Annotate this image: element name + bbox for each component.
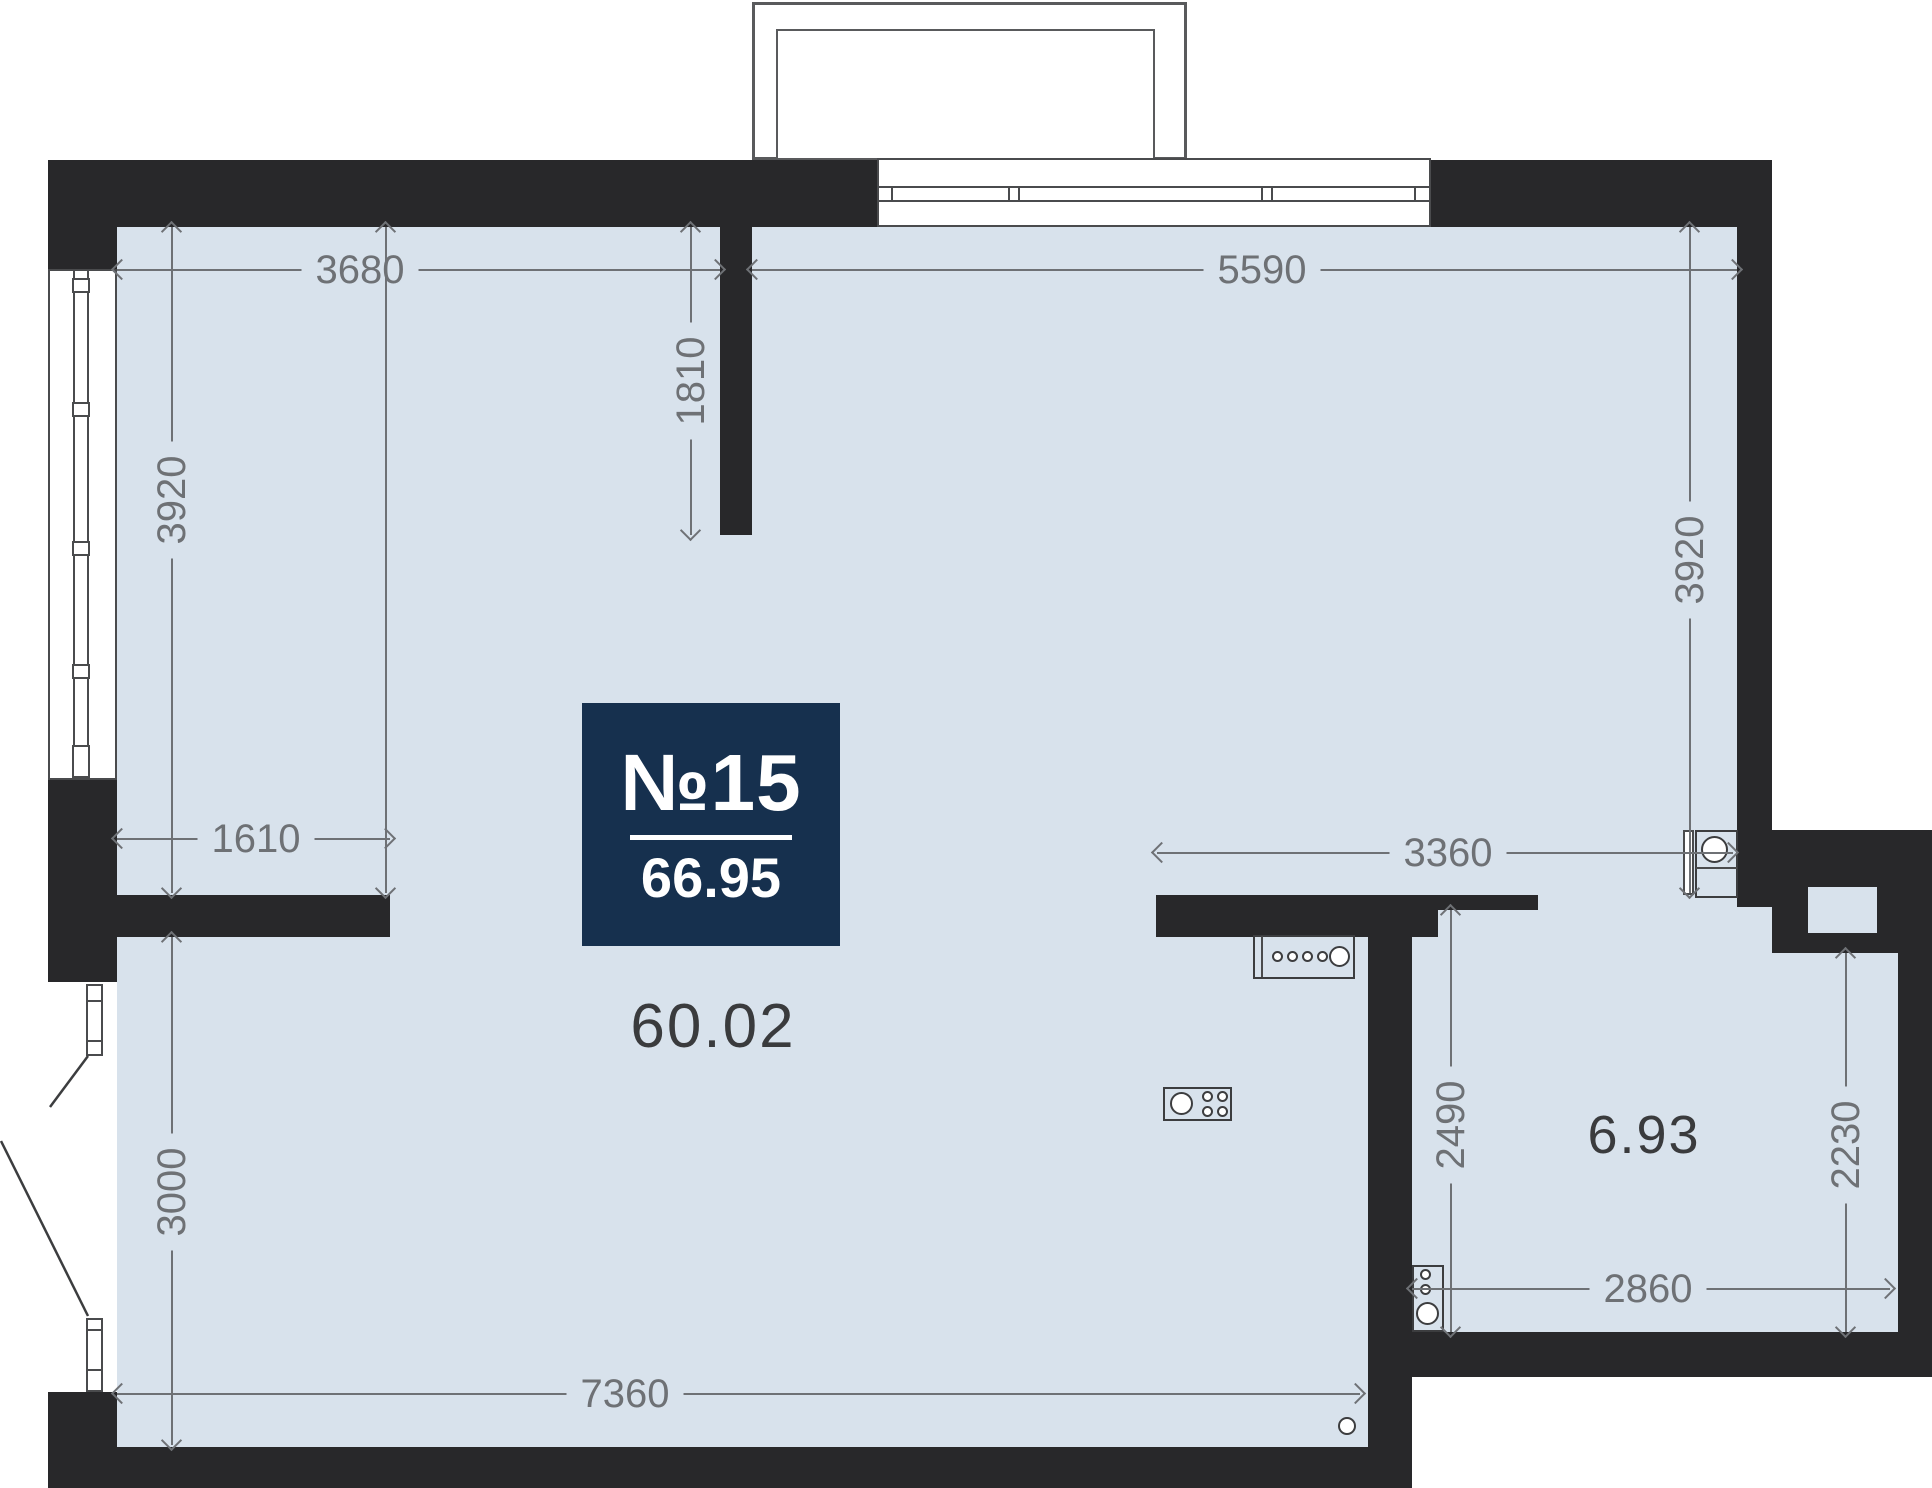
washer-drum xyxy=(1416,1302,1439,1325)
balcony-door-jamb-top-line-1 xyxy=(87,1000,102,1002)
wall-inner-1610 xyxy=(117,895,390,937)
dimension-witness-line xyxy=(385,227,387,893)
balcony-door-jamb-top-line-2 xyxy=(87,1040,102,1042)
top-window-mullion-3 xyxy=(1018,186,1020,202)
stove-small-burner-4 xyxy=(1217,1106,1228,1117)
dimension-left-height: 3920 xyxy=(171,227,173,893)
sink-burner-1 xyxy=(1272,951,1283,962)
dimension-kitchen-width: 3360 xyxy=(1157,852,1733,854)
badge-divider xyxy=(630,835,792,840)
dimension-entry-stub-depth: 1810 xyxy=(690,227,692,535)
dimension-lower-left-height: 3000 xyxy=(171,937,173,1445)
dimension-bathroom-left-height: 2490 xyxy=(1450,910,1452,1332)
wall-bottom xyxy=(117,1447,1412,1488)
balcony-door-jamb-bottom-line-2 xyxy=(87,1369,102,1371)
sink-burner-4 xyxy=(1317,951,1328,962)
sink-counter-edge xyxy=(1261,936,1263,977)
top-window-mullion-5 xyxy=(1271,186,1273,202)
wall-bathroom-right xyxy=(1898,953,1932,1332)
balcony-door-jamb-bottom-line-1 xyxy=(87,1329,102,1331)
dimension-left-inner-width: 1610 xyxy=(117,838,390,840)
dimension-bottom-width: 7360 xyxy=(117,1393,1360,1395)
left-window-mullion-2 xyxy=(72,402,90,417)
wall-entry-stub xyxy=(720,227,752,535)
wall-top-right xyxy=(1431,160,1772,227)
top-window-mullion-4 xyxy=(1261,186,1263,202)
left-window-mullion-4 xyxy=(72,664,90,679)
dimension-label: 3920 xyxy=(150,442,194,559)
floor-plan-page: { "plan": { "badge": { "unit_number": "№… xyxy=(0,0,1932,1488)
bathroom-area-label: 6.93 xyxy=(1587,1108,1700,1162)
boiler-divider xyxy=(1696,867,1737,869)
duct-shaft xyxy=(1808,887,1877,933)
stove-small-burner-2 xyxy=(1217,1091,1228,1102)
left-window xyxy=(48,269,117,780)
stove-small-burner-1 xyxy=(1202,1091,1213,1102)
main-room-area-label: 60.02 xyxy=(630,996,795,1058)
left-window-mullion-1 xyxy=(72,278,90,293)
dimension-label: 7360 xyxy=(567,1372,684,1416)
top-window xyxy=(877,158,1431,227)
dimension-bathroom-right-height: 2230 xyxy=(1845,953,1847,1332)
door-handle-icon xyxy=(1338,1417,1356,1435)
wall-bathroom-bottom xyxy=(1412,1332,1932,1377)
outside-below-bathroom xyxy=(1412,1377,1932,1447)
top-window-glass-line-2 xyxy=(879,200,1429,202)
wall-left-mid-block xyxy=(48,780,117,982)
wall-right xyxy=(1737,227,1772,830)
stove-small-burner-3 xyxy=(1202,1106,1213,1117)
top-window-mullion-1 xyxy=(891,186,893,202)
sink-burner-2 xyxy=(1287,951,1298,962)
dimension-label: 2860 xyxy=(1590,1267,1707,1311)
dimension-label: 2230 xyxy=(1824,1087,1868,1204)
dimension-bathroom-width: 2860 xyxy=(1412,1288,1890,1290)
dimension-label: 3920 xyxy=(1668,502,1712,619)
dimension-label: 5590 xyxy=(1204,248,1321,292)
wall-left-corner xyxy=(48,227,117,269)
balcony-inner-outline xyxy=(776,29,1155,160)
sink-burner-3 xyxy=(1302,951,1313,962)
dimension-label: 3360 xyxy=(1390,831,1507,875)
unit-badge: №15 66.95 xyxy=(582,703,840,946)
top-window-mullion-2 xyxy=(1008,186,1010,202)
left-window-mullion-3 xyxy=(72,541,90,556)
top-window-glass-line-1 xyxy=(879,186,1429,188)
unit-number: №15 xyxy=(620,743,801,823)
sink-bowl xyxy=(1329,946,1350,967)
wall-kitchen-stub xyxy=(1156,895,1438,937)
dimension-label: 3000 xyxy=(150,1134,194,1251)
unit-total-area: 66.95 xyxy=(641,850,781,906)
left-window-glass-line-2 xyxy=(87,271,89,778)
wall-left-bottom-block xyxy=(48,1392,117,1488)
dimension-label: 1810 xyxy=(669,323,713,440)
stove-large-burner xyxy=(1170,1092,1193,1115)
dimension-label: 1610 xyxy=(198,817,315,861)
wall-bathroom-left xyxy=(1368,937,1412,1447)
left-window-sill-cap xyxy=(72,745,90,778)
left-window-glass-line-1 xyxy=(73,271,75,778)
dimension-top-right-width: 5590 xyxy=(752,269,1737,271)
dimension-right-height: 3920 xyxy=(1689,227,1691,893)
washer-knob-1 xyxy=(1420,1269,1431,1280)
dimension-top-left-width: 3680 xyxy=(117,269,720,271)
dimension-label: 2490 xyxy=(1429,1067,1473,1184)
dimension-label: 3680 xyxy=(302,248,419,292)
top-window-mullion-6 xyxy=(1414,186,1416,202)
wall-top-left xyxy=(48,160,877,227)
balcony-door-jamb-top xyxy=(86,984,103,1056)
